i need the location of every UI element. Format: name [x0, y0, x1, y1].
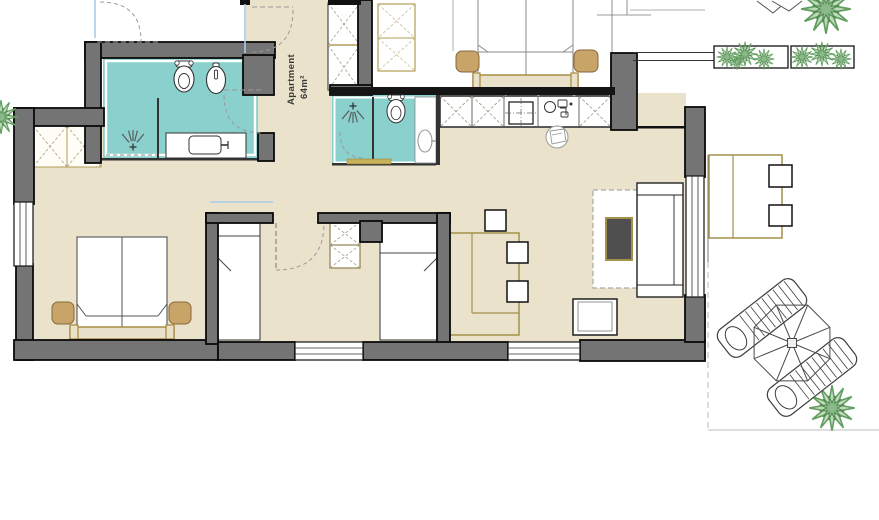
wall-stub-wardrobe-top [328, 0, 361, 5]
wall-bedrooms-top-right [318, 213, 450, 223]
wall-hall-right [358, 0, 372, 92]
master-headboard [70, 327, 174, 339]
dining-chair-right-2 [507, 281, 528, 302]
wardrobe-hall [328, 3, 360, 90]
wall-bedroom-divider [206, 213, 218, 344]
wall-bath1-right-upper [243, 55, 274, 95]
wall-bedrooms-top-left [206, 213, 273, 223]
single-bed-left [218, 222, 260, 340]
dining-chair-right-1 [507, 242, 528, 263]
window-bedroom2 [295, 342, 363, 360]
master-nightstand-left [52, 302, 74, 324]
master-nightstand-right [169, 302, 191, 324]
window-living-bottom [508, 342, 580, 360]
wardrobe-neighbor [378, 4, 415, 71]
neighbor-nightstand-right [574, 50, 598, 72]
kitchen-chair-icon [546, 126, 568, 148]
neighbor-nightstand-left [456, 51, 479, 72]
window-left [14, 202, 33, 266]
wardrobe-bedroom-2 [330, 222, 360, 268]
apartment-label-line2: 64m² [299, 75, 310, 99]
terrace-door-sill [637, 126, 686, 129]
coffee-table [606, 218, 632, 260]
neighbor-headboard [473, 75, 578, 89]
bathroom-2-threshold [347, 159, 391, 164]
terrace-chair-1 [769, 165, 792, 187]
window-living-right [686, 176, 704, 297]
wall-bottom-middle [363, 342, 508, 360]
wall-right-upper [685, 107, 705, 177]
single-bed-right [380, 222, 437, 340]
wall-bath1-left [85, 42, 101, 163]
bathroom-1-sink [189, 136, 221, 154]
wall-bottom-bedroom2 [218, 342, 295, 360]
dining-chair-top [485, 210, 506, 231]
side-table [573, 299, 617, 335]
wall-bottom-master [14, 340, 218, 360]
apartment-label-line1: Apartment [286, 53, 297, 105]
toilet-bathroom-1 [174, 61, 194, 92]
toilet-bathroom-2 [387, 95, 405, 123]
wall-bath2-living-partition [436, 95, 440, 165]
bathroom-2-sink [418, 130, 432, 152]
wall-bottom-right [580, 340, 705, 361]
wall-pillar [360, 221, 382, 242]
wall-left-upper [14, 108, 34, 204]
wall-right-lower [685, 295, 705, 342]
wall-bath1-right-lower [258, 133, 274, 161]
floor-plan-canvas: Apartment 64m² [0, 0, 879, 520]
floor-plan-svg: Apartment 64m² [0, 0, 879, 520]
terrace-chair-2 [769, 205, 792, 226]
sofa [637, 183, 683, 297]
wall-bedroom2-right [437, 213, 450, 344]
wall-party-top [330, 87, 615, 95]
